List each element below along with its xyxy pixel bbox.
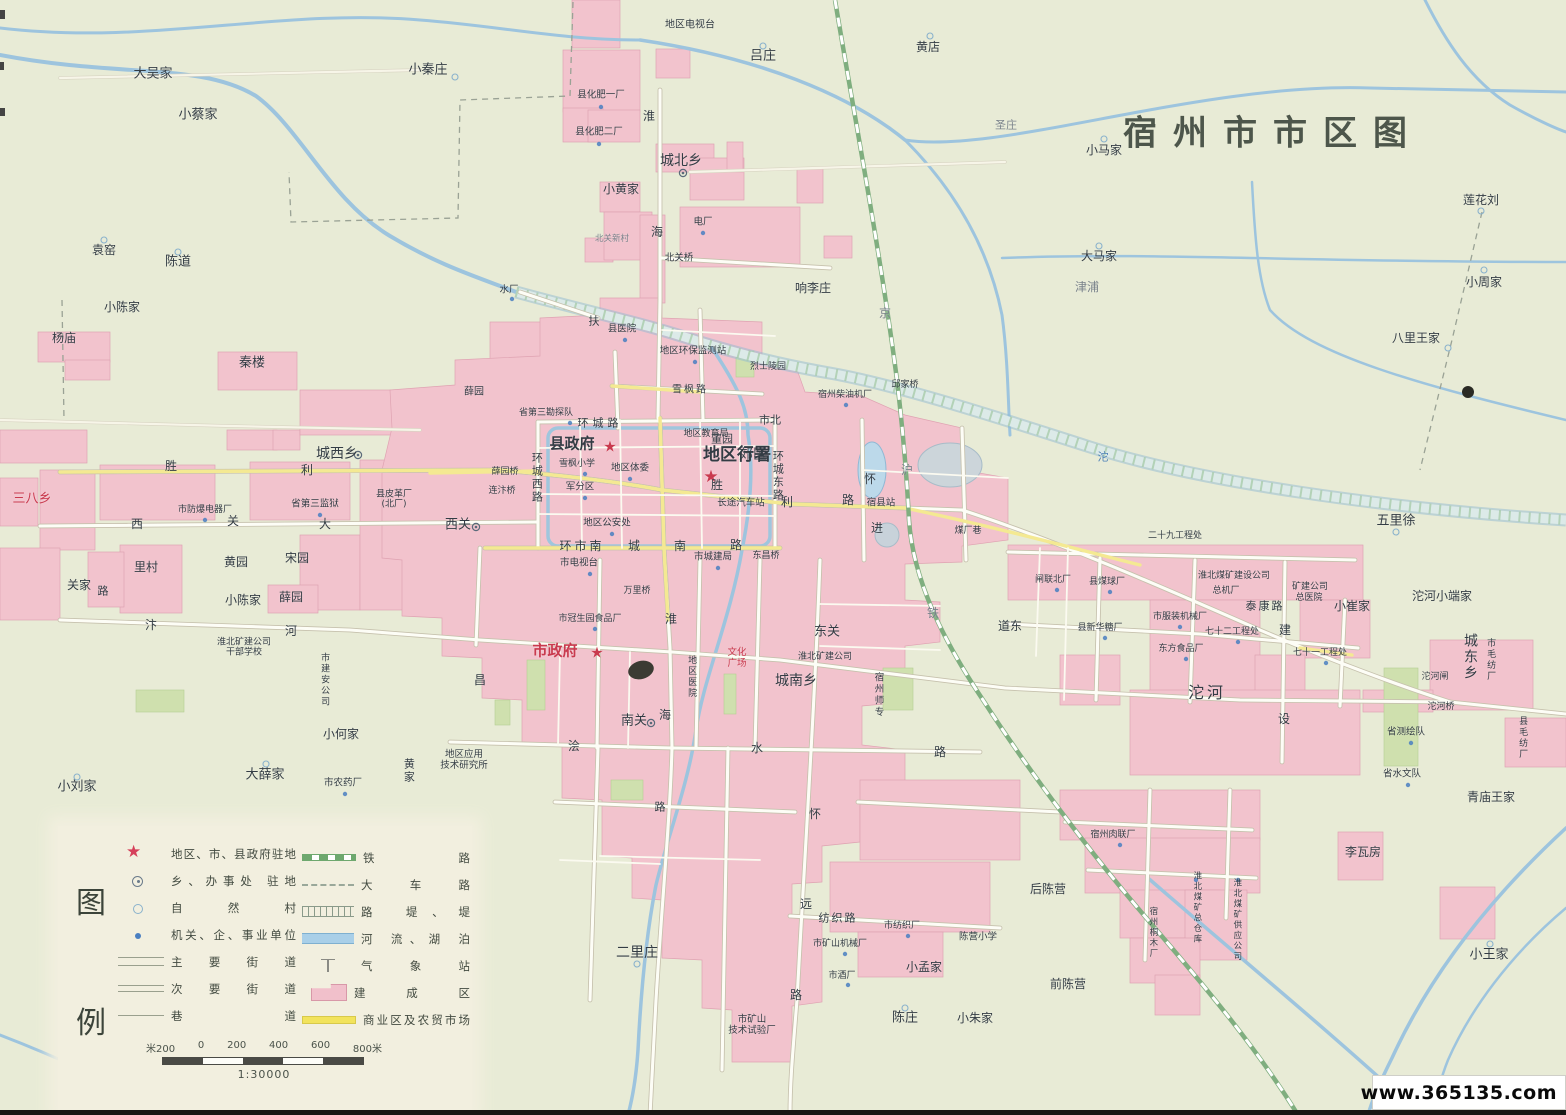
map-label: 长途汽车站	[717, 499, 765, 510]
map-title: 宿州市市区图	[1123, 106, 1423, 155]
road-lane-legend-icon	[118, 1015, 164, 1016]
legend-item-label: 路 堤、堤	[361, 904, 470, 920]
map-label: 地区医院	[686, 655, 696, 699]
legend-left-column: 地区、市、县政府驻地乡、办事处 驻地自 然 村机关、企、事业单位主 要 街 道次…	[118, 840, 296, 1029]
map-label: 地区环保监测站	[660, 347, 727, 358]
map-label: 电厂	[693, 218, 712, 229]
map-label: 市政府	[532, 642, 577, 659]
map-label: 大薛家	[245, 769, 284, 784]
map-label: 小周家	[1466, 276, 1502, 290]
map-label: 胜	[711, 479, 723, 493]
map-label: 陈道	[165, 256, 191, 271]
map-label: 地区应用 技术研究所	[440, 750, 488, 772]
map-label: 五里徐	[1376, 515, 1415, 530]
map-label: 道东	[998, 620, 1022, 634]
map-label: 进	[871, 522, 883, 536]
map-label: 路	[842, 494, 854, 508]
legend-right-column: 铁 路大 车 路路 堤、堤河 流、湖 泊气 象 站建 成 区商业区及农贸市场	[302, 844, 470, 1033]
map-label: 李瓦房	[1345, 846, 1381, 860]
map-label: 邱家桥	[891, 380, 918, 390]
road-major-legend-icon	[118, 957, 164, 966]
legend-panel: 图 例 地区、市、县政府驻地乡、办事处 驻地自 然 村机关、企、事业单位主 要 …	[58, 826, 472, 1112]
legend-item: 地区、市、县政府驻地	[118, 840, 296, 867]
map-label: 省水文队	[1383, 770, 1421, 781]
map-label: 河	[285, 625, 297, 639]
map-label: 市矿山 技术试验厂	[728, 1015, 776, 1037]
legend-item: 次 要 街 道	[118, 975, 296, 1002]
map-label: 地区体委	[611, 464, 649, 475]
map-label: 县皮革厂 (北厂)	[376, 490, 412, 511]
map-label: 圣庄	[995, 120, 1017, 133]
map-label: 市矿山机械厂	[813, 939, 867, 949]
map-label: 小朱家	[957, 1012, 993, 1026]
map-label: 七十一工程处	[1293, 648, 1347, 658]
legend-item-label: 地区、市、县政府驻地	[171, 846, 296, 862]
legend-heading-char: 图	[76, 878, 106, 922]
map-label: 省第三勘探队	[519, 408, 573, 418]
map-label: 市防爆电器厂	[178, 505, 232, 515]
scale-tick: 米200	[146, 1040, 175, 1055]
map-label: 小陈家	[104, 301, 140, 315]
map-label: 胜	[165, 460, 177, 474]
rail-legend-icon	[302, 854, 356, 861]
legend-scale: 米2000200400600800米 1:30000	[146, 1040, 382, 1081]
legend-item: 自 然 村	[118, 894, 296, 921]
map-label: 市城建局	[694, 553, 732, 564]
map-label: 沪	[901, 464, 913, 478]
map-label: 路	[655, 802, 666, 815]
watermark-text: www.365135.com	[1361, 1082, 1565, 1104]
map-label: 响李庄	[795, 282, 831, 296]
map-label: 环城西路	[530, 452, 543, 504]
map-label: 总医院	[1295, 593, 1322, 603]
river-legend-icon	[302, 933, 354, 944]
map-label: 大马家	[1081, 250, 1117, 264]
map-label: 煤厂巷	[954, 526, 981, 536]
map-canvas: 大吴家小蔡家小秦庄袁窑陈道小陈家杨庙秦楼地区电视台吕庄黄店县化肥一厂县化肥二厂圣…	[0, 0, 1566, 1115]
map-label: 北关新村	[595, 235, 629, 245]
map-label: 宿县站	[867, 499, 896, 510]
legend-item: 乡、办事处 驻地	[118, 867, 296, 894]
map-label: 西	[131, 518, 143, 532]
map-label: 路	[934, 746, 946, 760]
map-label: 袁窑	[92, 244, 116, 258]
map-label: 薛园	[279, 591, 303, 605]
map-label: ★	[603, 438, 616, 455]
star-legend-icon	[118, 846, 164, 862]
map-label: 淮	[643, 110, 655, 124]
legend-item: 商业区及农贸市场	[302, 1006, 470, 1033]
map-label: 雪枫路	[672, 384, 708, 396]
map-label: 环城东路	[771, 450, 784, 502]
scale-ratio: 1:30000	[146, 1068, 382, 1081]
map-label: 市毛纺厂	[1485, 638, 1495, 682]
map-label: 建	[1279, 624, 1291, 638]
map-label: 怀	[809, 808, 821, 822]
legend-item-label: 次 要 街 道	[171, 981, 296, 997]
map-label: 市农药厂	[324, 779, 362, 790]
weather-legend-icon	[302, 958, 354, 974]
scale-tick: 0	[198, 1040, 204, 1055]
watermark: www.365135.com	[1372, 1075, 1566, 1110]
map-label: 路	[790, 989, 802, 1003]
map-label: 城南乡	[775, 673, 817, 689]
map-label: 黄家	[402, 758, 415, 784]
legend-item: 路 堤、堤	[302, 898, 470, 925]
map-label: 七十二工程处	[1205, 627, 1259, 637]
map-label: 小陈家	[225, 594, 261, 608]
map-label: 市纺织厂	[884, 921, 920, 931]
map-label: 淮北煤矿总仓库	[1191, 871, 1201, 945]
scale-tick: 200	[227, 1040, 246, 1055]
map-label: 地区公安处	[583, 519, 631, 530]
map-label: 市建安公司	[319, 653, 329, 708]
map-border	[0, 1110, 1566, 1115]
map-label: 南关	[621, 715, 647, 730]
map-label: 连汴桥	[488, 486, 515, 496]
map-label: 关家	[67, 579, 91, 593]
map-label: 二里庄	[616, 945, 658, 961]
map-label: 矿建公司	[1292, 582, 1328, 592]
legend-item: 大 车 路	[302, 871, 470, 898]
map-label: 小刘家	[57, 781, 96, 796]
map-label: 汴	[145, 619, 157, 633]
map-label: 薛园	[464, 386, 484, 398]
map-label: 昌	[474, 674, 486, 688]
map-label: 小孟家	[906, 961, 942, 975]
map-label: 沱河桥	[1427, 702, 1454, 712]
map-label: 沱河小端家	[1412, 590, 1472, 604]
map-label: 淮北矿建公司	[798, 652, 852, 662]
map-label: 县医院	[608, 325, 637, 336]
map-label: 后陈营	[1030, 883, 1066, 897]
legend-item-label: 主 要 街 道	[171, 954, 296, 970]
legend-item: 河 流、湖 泊	[302, 925, 470, 952]
legend-item: 气 象 站	[302, 952, 470, 979]
map-label: 设	[1278, 713, 1290, 727]
scale-bar	[162, 1057, 364, 1065]
emb-legend-icon	[302, 906, 354, 917]
map-label: 城东乡	[1462, 633, 1478, 681]
map-label: 小马家	[1086, 144, 1122, 158]
map-label: 小黄家	[603, 183, 639, 197]
map-label: 陈庄	[892, 1012, 918, 1027]
map-label: 地区电视台	[665, 19, 715, 31]
map-label: 环城路	[578, 418, 623, 431]
legend-item-label: 铁 路	[363, 850, 470, 866]
map-label: 黄店	[916, 41, 940, 55]
map-label: 小蔡家	[178, 109, 217, 124]
map-label: 环市南	[559, 540, 604, 554]
legend-item-label: 乡、办事处 驻地	[171, 873, 296, 889]
map-label: 海	[651, 226, 663, 240]
dot-legend-icon	[118, 927, 164, 943]
map-label: 大	[319, 518, 331, 532]
map-label: 宿州柴油机厂	[818, 390, 872, 400]
map-label: 怀	[864, 473, 876, 487]
map-label: 黄园	[224, 556, 248, 570]
map-label: 宿州桐木厂	[1147, 907, 1157, 960]
map-label: 东关	[814, 626, 840, 641]
map-label: 海	[659, 709, 671, 723]
legend-item-label: 河 流、湖 泊	[361, 931, 470, 947]
map-label: 沱	[1098, 452, 1109, 465]
map-label: 东方食品厂	[1158, 644, 1203, 654]
map-label: 城北乡	[660, 153, 702, 169]
map-label: 县煤球厂	[1089, 577, 1125, 587]
road-minor-legend-icon	[118, 985, 164, 992]
map-label: 京	[879, 307, 891, 321]
map-label: 小何家	[323, 728, 359, 742]
map-label: 县毛纺厂	[1517, 716, 1527, 760]
cart-legend-icon	[302, 884, 354, 886]
seat-legend-icon	[118, 873, 164, 889]
map-label: 南	[674, 540, 686, 554]
map-label: 雪枫小学	[559, 459, 595, 469]
map-label: 路	[98, 586, 109, 599]
map-label: 里村	[134, 561, 158, 575]
map-label: 文化 广场	[727, 648, 746, 670]
map-label: 烈士陵园	[750, 362, 786, 372]
built-legend-icon	[311, 984, 347, 1001]
map-label: 利	[301, 464, 313, 478]
map-label: 扶	[589, 316, 600, 329]
map-label: 总机厂	[1212, 586, 1239, 596]
map-label: 青庙王家	[1467, 791, 1515, 805]
map-label: 薛园桥	[491, 467, 518, 477]
map-label: 前陈营	[1050, 978, 1086, 992]
map-label: 铁	[927, 607, 939, 621]
map-label: 淮北煤矿供应公司	[1231, 878, 1241, 962]
map-label: 军分区	[566, 483, 595, 494]
map-label: 市冠生园食品厂	[558, 614, 621, 624]
legend-item-label: 机关、企、事业单位	[171, 927, 296, 943]
map-label: 地区行署	[703, 446, 771, 466]
map-label: 县新华糖厂	[1077, 623, 1122, 633]
market-legend-icon	[302, 1016, 356, 1024]
legend-item-label: 巷 道	[171, 1008, 296, 1024]
map-label: 水厂	[499, 286, 518, 297]
map-label: 省第三监狱	[291, 500, 339, 511]
scale-tick: 600	[311, 1040, 330, 1055]
map-label: 秦楼	[239, 357, 265, 372]
map-label: 纺织路	[819, 913, 858, 926]
map-label: 津浦	[1075, 281, 1099, 295]
map-label: 三八乡	[12, 493, 51, 508]
map-label: 万里桥	[623, 586, 650, 596]
legend-item: 机关、企、事业单位	[118, 921, 296, 948]
scale-tick: 800米	[353, 1040, 382, 1055]
map-label: 县化肥一厂	[577, 91, 625, 102]
legend-item: 铁 路	[302, 844, 470, 871]
map-label: 市服装机械厂	[1153, 612, 1207, 622]
map-label: 小王家	[1469, 949, 1508, 964]
map-label: 大吴家	[133, 68, 172, 83]
map-label: 北关桥	[665, 254, 694, 265]
map-label: 沱河	[1188, 684, 1226, 702]
ring-legend-icon	[118, 900, 164, 916]
map-label: 县政府	[549, 435, 594, 452]
map-label: 小秦庄	[408, 64, 447, 79]
map-label: 淮北矿建公司 干部学校	[217, 638, 271, 659]
map-label: ★	[590, 644, 603, 661]
legend-item: 建 成 区	[302, 979, 470, 1006]
map-label: 小崔家	[1334, 600, 1370, 614]
map-label: 宋园	[285, 552, 309, 566]
map-label: 宿州师专	[872, 672, 883, 718]
map-label: 泰康路	[1246, 601, 1285, 614]
legend-item-label: 自 然 村	[171, 900, 296, 916]
map-label: 县化肥二厂	[575, 128, 623, 139]
map-label: 城	[628, 540, 640, 554]
map-label: 西关	[445, 519, 471, 534]
map-label: 陈营小学	[959, 933, 997, 944]
map-label: 吕庄	[750, 50, 776, 65]
map-label: 城西乡	[316, 446, 358, 462]
legend-item: 主 要 街 道	[118, 948, 296, 975]
map-label: 东昌桥	[752, 551, 779, 561]
map-label: 闸联北厂	[1035, 575, 1071, 585]
map-label: 市酒厂	[828, 971, 855, 981]
map-label: 莲花刘	[1463, 194, 1499, 208]
legend-item-label: 大 车 路	[361, 877, 470, 893]
map-label: 杨庙	[52, 332, 76, 346]
legend-item: 巷 道	[118, 1002, 296, 1029]
scale-ticks: 米2000200400600800米	[146, 1040, 382, 1055]
map-label: 浍	[568, 740, 580, 754]
legend-item-label: 商业区及农贸市场	[363, 1012, 470, 1028]
map-label: 沱河闸	[1421, 672, 1448, 682]
scale-tick: 400	[269, 1040, 288, 1055]
map-label: 二十九工程处	[1148, 531, 1202, 541]
map-label: 八里王家	[1392, 332, 1440, 346]
legend-heading-char: 例	[76, 998, 106, 1042]
map-label: 淮北煤矿建设公司	[1198, 571, 1270, 581]
map-label: 市北	[759, 415, 781, 428]
map-label: 地区教育局	[683, 429, 728, 439]
legend-item-label: 建 成 区	[354, 985, 470, 1001]
map-label: 关	[227, 515, 239, 529]
map-label: 省测绘队	[1387, 728, 1425, 739]
legend-item-label: 气 象 站	[361, 958, 470, 974]
map-label: 水	[751, 742, 763, 756]
map-label: 宿州肉联厂	[1090, 830, 1135, 840]
map-label: 市电视台	[560, 559, 598, 570]
map-label: 淮	[665, 613, 677, 627]
map-label: 远	[800, 898, 812, 912]
